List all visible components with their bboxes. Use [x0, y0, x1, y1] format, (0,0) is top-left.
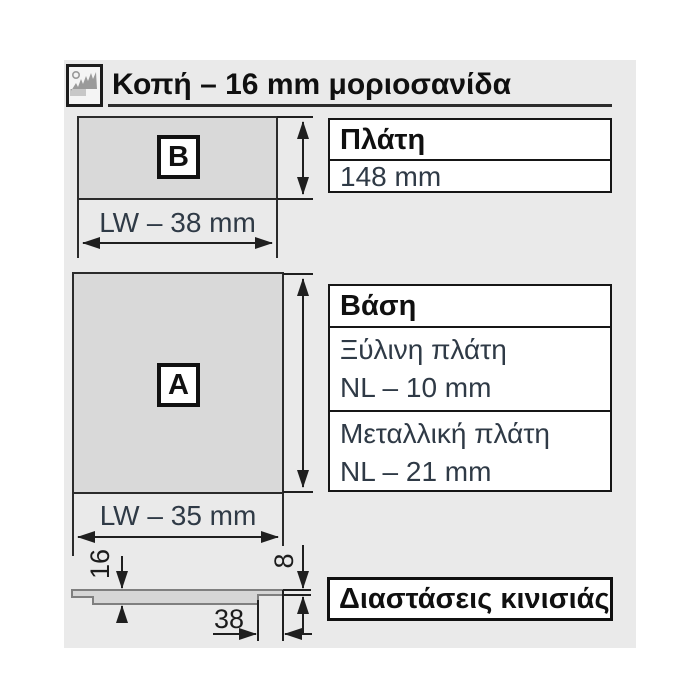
header-rule — [108, 104, 612, 107]
wood-back-value: NL – 10 mm — [340, 369, 610, 407]
page-title: Κοπή – 16 mm μοριοσανίδα — [112, 68, 612, 102]
saw-icon — [66, 64, 103, 107]
wood-back-label: Ξύλινη πλάτη — [340, 331, 610, 369]
base-table-row-wood: Ξύλινη πλάτη NL – 10 mm — [330, 326, 610, 410]
base-table: Βάση Ξύλινη πλάτη NL – 10 mm Μεταλλική π… — [328, 284, 612, 492]
back-table-header: Πλάτη — [330, 120, 610, 159]
dim-8-label: 8 — [269, 543, 299, 579]
dim-16-label: 16 — [85, 546, 115, 582]
metal-back-label: Μεταλλική πλάτη — [340, 415, 610, 453]
dim-38-label: 38 — [207, 605, 251, 633]
part-b-badge: B — [157, 135, 200, 179]
metal-back-value: NL – 21 mm — [340, 453, 610, 491]
base-table-row-metal: Μεταλλική πλάτη NL – 21 mm — [330, 410, 610, 490]
groove-dimensions-label: Διαστάσεις κινισιάς — [339, 583, 610, 616]
back-table: Πλάτη 148 mm — [328, 118, 612, 193]
part-a-badge: A — [157, 363, 200, 407]
groove-dimensions-box: Διαστάσεις κινισιάς — [327, 577, 613, 621]
part-b-width-label: LW – 38 mm — [78, 207, 277, 239]
part-a-width-label: LW – 35 mm — [73, 500, 283, 532]
back-table-value: 148 mm — [330, 159, 610, 191]
base-table-header: Βάση — [330, 286, 610, 326]
